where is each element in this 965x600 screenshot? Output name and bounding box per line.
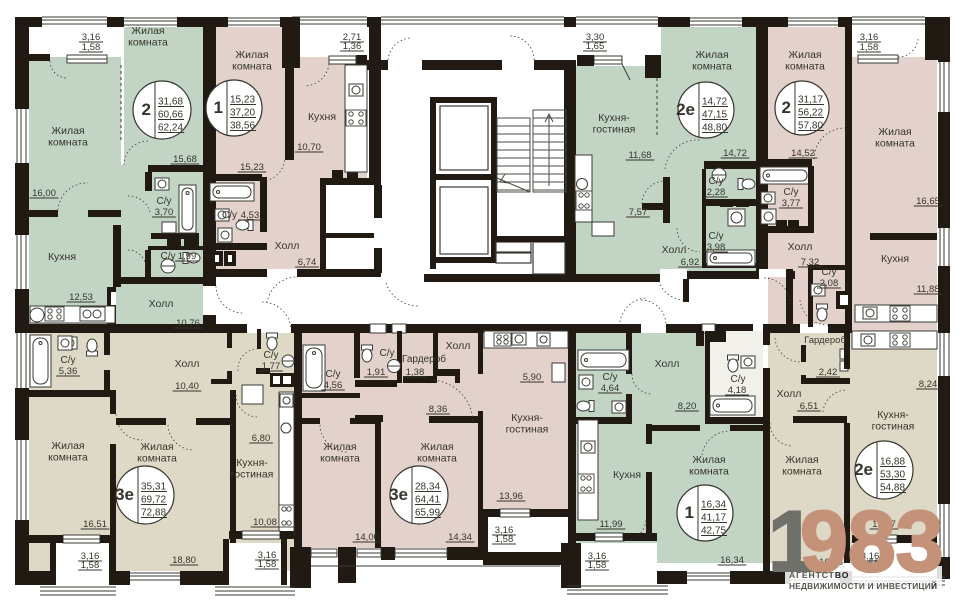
svg-text:38,56: 38,56 xyxy=(230,121,255,132)
svg-text:С/у: С/у xyxy=(709,231,724,242)
svg-text:С/у: С/у xyxy=(157,196,172,207)
svg-text:Холл: Холл xyxy=(788,241,813,253)
svg-text:54,88: 54,88 xyxy=(880,483,905,494)
svg-text:12,53: 12,53 xyxy=(69,292,93,303)
svg-text:8,20: 8,20 xyxy=(678,401,697,412)
svg-text:1,58: 1,58 xyxy=(860,42,879,53)
svg-text:3,70: 3,70 xyxy=(155,207,174,218)
svg-text:Жилаякомната: Жилаякомната xyxy=(875,126,915,150)
svg-text:4,53: 4,53 xyxy=(241,210,260,221)
svg-text:16,34: 16,34 xyxy=(701,500,726,511)
svg-text:Жилаякомната: Жилаякомната xyxy=(785,49,825,73)
svg-text:1,99: 1,99 xyxy=(178,251,197,262)
svg-text:7,57: 7,57 xyxy=(629,207,648,218)
svg-text:16,34: 16,34 xyxy=(720,555,744,566)
svg-text:3е: 3е xyxy=(389,485,408,504)
svg-text:С/у: С/у xyxy=(222,210,237,221)
svg-text:Кухня-гостиная: Кухня-гостиная xyxy=(231,457,274,481)
svg-text:Жилаякомната: Жилаякомната xyxy=(417,441,457,465)
svg-text:2: 2 xyxy=(782,98,791,117)
svg-text:С/у: С/у xyxy=(161,251,176,262)
svg-text:2е: 2е xyxy=(676,100,695,119)
svg-text:14,52: 14,52 xyxy=(791,148,815,159)
svg-text:1,58: 1,58 xyxy=(81,560,100,571)
svg-text:1,77: 1,77 xyxy=(262,361,281,372)
svg-text:С/у: С/у xyxy=(822,267,837,278)
svg-text:С/у: С/у xyxy=(603,372,618,383)
svg-text:1,58: 1,58 xyxy=(258,559,277,570)
svg-text:14,34: 14,34 xyxy=(448,532,472,543)
svg-text:57,80: 57,80 xyxy=(798,121,823,132)
svg-text:АГЕНТСТВО: АГЕНТСТВО xyxy=(789,570,849,580)
svg-text:С/у: С/у xyxy=(380,348,395,359)
svg-text:18,80: 18,80 xyxy=(172,555,196,566)
svg-text:1,58: 1,58 xyxy=(495,534,514,545)
svg-text:42,75: 42,75 xyxy=(701,526,726,537)
svg-text:Кухня-гостиная: Кухня-гостиная xyxy=(593,112,636,136)
svg-text:3,98: 3,98 xyxy=(707,242,726,253)
svg-text:10,40: 10,40 xyxy=(175,381,199,392)
svg-text:2,08: 2,08 xyxy=(820,278,839,289)
svg-text:41,17: 41,17 xyxy=(701,513,726,524)
svg-text:6,92: 6,92 xyxy=(681,257,700,268)
svg-text:Холл: Холл xyxy=(777,388,802,400)
svg-text:Жилаякомната: Жилаякомната xyxy=(689,454,729,478)
svg-text:2е: 2е xyxy=(854,460,873,479)
svg-text:53,30: 53,30 xyxy=(880,470,905,481)
svg-text:Кухня: Кухня xyxy=(881,253,909,265)
svg-text:1,58: 1,58 xyxy=(588,560,607,571)
svg-text:5,36: 5,36 xyxy=(59,366,78,377)
svg-text:14,72: 14,72 xyxy=(723,148,747,159)
svg-text:13,96: 13,96 xyxy=(499,491,523,502)
svg-text:72,88: 72,88 xyxy=(141,508,166,519)
svg-text:Холл: Холл xyxy=(662,244,687,256)
svg-text:10,76: 10,76 xyxy=(176,318,200,329)
svg-text:47,15: 47,15 xyxy=(702,110,727,121)
svg-text:37,20: 37,20 xyxy=(230,108,255,119)
svg-text:Кухня: Кухня xyxy=(308,111,336,123)
svg-text:14,00: 14,00 xyxy=(355,532,379,543)
svg-text:Гардероб: Гардероб xyxy=(804,335,846,346)
svg-text:1,65: 1,65 xyxy=(586,41,605,52)
svg-text:16,00: 16,00 xyxy=(32,188,56,199)
svg-text:4,18: 4,18 xyxy=(728,385,747,396)
svg-text:Жилаякомната: Жилаякомната xyxy=(48,440,88,464)
svg-text:28,34: 28,34 xyxy=(415,482,440,493)
svg-text:1: 1 xyxy=(685,503,694,522)
svg-text:16,65: 16,65 xyxy=(916,196,940,207)
svg-text:Жилаякомната: Жилаякомната xyxy=(128,25,168,49)
svg-text:Холл: Холл xyxy=(175,358,200,370)
svg-text:2,28: 2,28 xyxy=(707,187,726,198)
svg-text:Жилаякомната: Жилаякомната xyxy=(782,454,822,478)
svg-text:8,24: 8,24 xyxy=(919,379,938,390)
svg-text:НЕДВИЖИМОСТИ И ИНВЕСТИЦИЙ: НЕДВИЖИМОСТИ И ИНВЕСТИЦИЙ xyxy=(789,580,937,591)
svg-text:8,36: 8,36 xyxy=(429,404,448,415)
svg-text:2: 2 xyxy=(142,100,151,119)
svg-text:1,58: 1,58 xyxy=(82,42,101,53)
svg-text:3е: 3е xyxy=(115,485,134,504)
svg-text:6,74: 6,74 xyxy=(298,257,317,268)
svg-text:16,51: 16,51 xyxy=(83,519,107,530)
svg-text:4,56: 4,56 xyxy=(324,380,343,391)
svg-text:Жилаякомната: Жилаякомната xyxy=(137,441,177,465)
svg-text:15,23: 15,23 xyxy=(240,162,264,173)
svg-text:14,72: 14,72 xyxy=(702,97,727,108)
svg-text:60,66: 60,66 xyxy=(158,110,183,121)
svg-text:С/у: С/у xyxy=(784,187,799,198)
svg-text:15,23: 15,23 xyxy=(230,95,255,106)
svg-text:Холл: Холл xyxy=(655,358,680,370)
svg-text:Жилаякомната: Жилаякомната xyxy=(48,125,88,149)
svg-text:11,99: 11,99 xyxy=(599,519,622,530)
svg-text:31,17: 31,17 xyxy=(798,95,823,106)
svg-text:65,99: 65,99 xyxy=(415,508,440,519)
svg-text:31,68: 31,68 xyxy=(158,97,183,108)
svg-text:Кухня-гостиная: Кухня-гостиная xyxy=(506,412,549,436)
svg-text:Кухня: Кухня xyxy=(613,469,641,481)
svg-text:Гардероб: Гардероб xyxy=(402,353,446,365)
svg-text:С/у: С/у xyxy=(731,374,746,385)
svg-text:1,38: 1,38 xyxy=(406,367,425,378)
svg-text:С/у: С/у xyxy=(326,369,341,380)
svg-text:1,91: 1,91 xyxy=(367,367,386,378)
svg-text:62,24: 62,24 xyxy=(158,123,183,134)
svg-text:С/у: С/у xyxy=(61,355,76,366)
svg-text:Жилаякомната: Жилаякомната xyxy=(692,49,732,73)
svg-text:6,80: 6,80 xyxy=(252,433,271,444)
svg-text:15,68: 15,68 xyxy=(173,154,197,165)
svg-text:Кухня: Кухня xyxy=(48,251,76,263)
svg-text:2,42: 2,42 xyxy=(819,367,838,378)
svg-text:3,77: 3,77 xyxy=(782,198,801,209)
svg-text:4,64: 4,64 xyxy=(601,383,620,394)
svg-text:56,22: 56,22 xyxy=(798,108,823,119)
svg-text:48,80: 48,80 xyxy=(702,123,727,134)
svg-text:10,70: 10,70 xyxy=(297,142,321,153)
svg-text:10,08: 10,08 xyxy=(253,517,277,528)
svg-text:11,68: 11,68 xyxy=(628,150,651,161)
svg-text:1,36: 1,36 xyxy=(343,41,362,52)
svg-text:16,88: 16,88 xyxy=(880,457,905,468)
svg-text:Жилаякомната: Жилаякомната xyxy=(320,441,360,465)
svg-text:5,90: 5,90 xyxy=(523,372,542,383)
svg-text:Холл: Холл xyxy=(446,340,471,352)
svg-text:Холл: Холл xyxy=(275,240,300,252)
svg-text:6,51: 6,51 xyxy=(800,401,819,412)
svg-text:7,32: 7,32 xyxy=(801,257,820,268)
svg-text:1: 1 xyxy=(214,98,223,117)
svg-text:69,72: 69,72 xyxy=(141,495,166,506)
svg-text:С/у: С/у xyxy=(264,350,279,361)
svg-text:Кухня-гостиная: Кухня-гостиная xyxy=(872,409,915,433)
svg-text:11,88: 11,88 xyxy=(916,284,939,295)
svg-text:35,31: 35,31 xyxy=(141,482,166,493)
svg-text:Жилаякомната: Жилаякомната xyxy=(232,49,272,73)
svg-text:64,41: 64,41 xyxy=(415,495,440,506)
svg-text:Холл: Холл xyxy=(149,298,174,310)
svg-text:С/у: С/у xyxy=(709,176,724,187)
